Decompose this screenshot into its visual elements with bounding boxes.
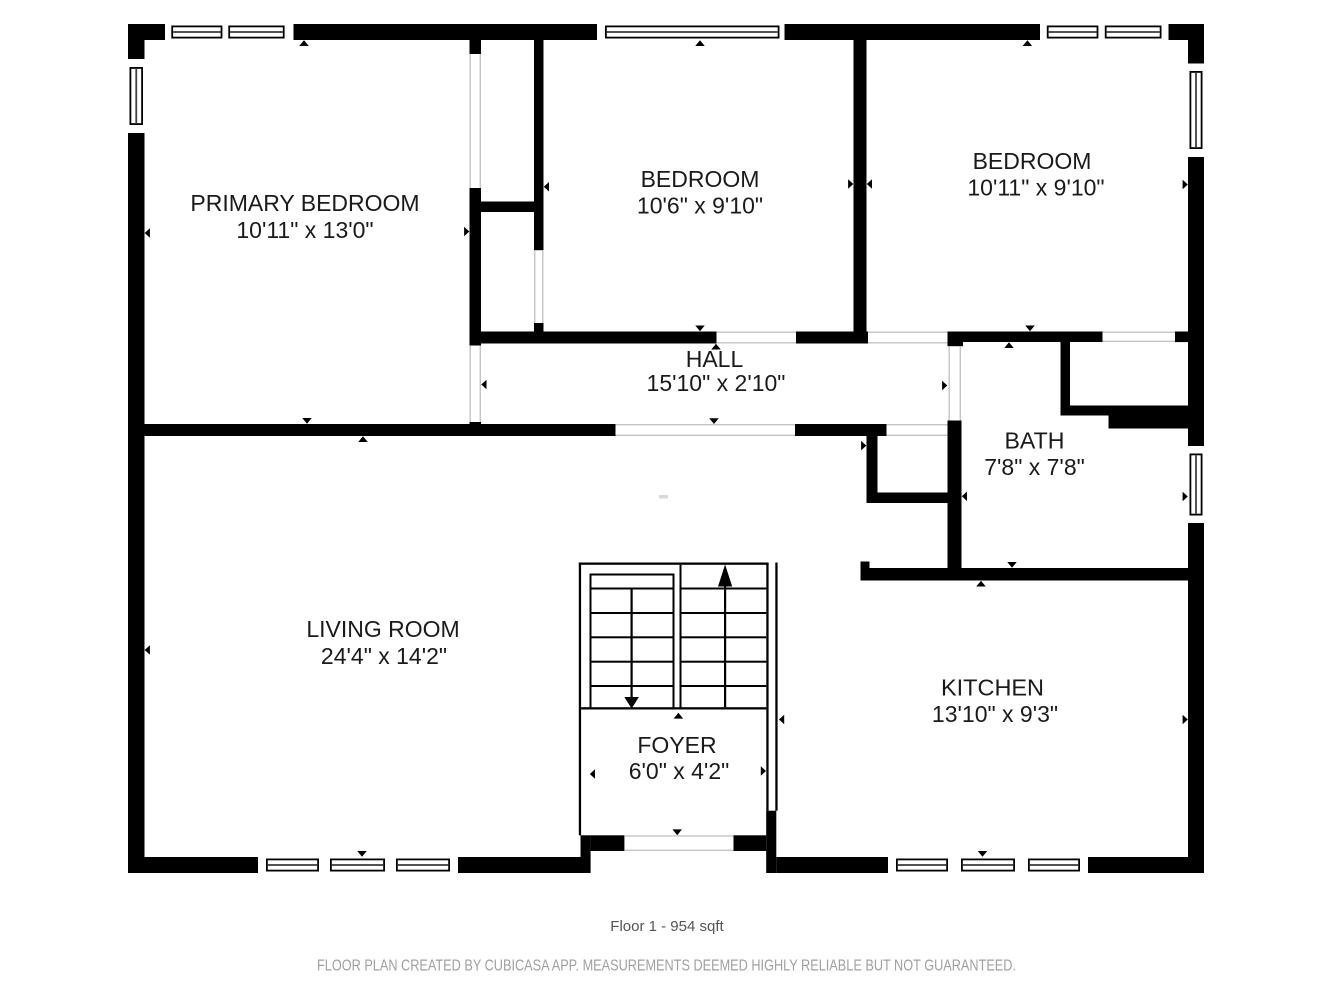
svg-text:BEDROOM: BEDROOM — [973, 148, 1092, 174]
svg-text:LIVING ROOM: LIVING ROOM — [306, 616, 459, 642]
svg-text:15'10" x 2'10": 15'10" x 2'10" — [647, 370, 786, 396]
svg-text:FOYER: FOYER — [637, 732, 716, 758]
svg-text:PRIMARY BEDROOM: PRIMARY BEDROOM — [190, 190, 419, 216]
svg-text:HALL: HALL — [686, 346, 744, 372]
svg-text:BATH: BATH — [1005, 428, 1065, 454]
svg-text:6'0" x 4'2": 6'0" x 4'2" — [629, 758, 730, 784]
svg-text:24'4" x 14'2": 24'4" x 14'2" — [321, 643, 447, 669]
svg-text:10'11" x 13'0": 10'11" x 13'0" — [236, 217, 373, 243]
svg-text:BEDROOM: BEDROOM — [641, 166, 760, 192]
svg-text:Floor 1 - 954 sqft: Floor 1 - 954 sqft — [610, 918, 724, 935]
svg-text:13'10" x 9'3": 13'10" x 9'3" — [932, 701, 1058, 727]
svg-text:7'8" x 7'8": 7'8" x 7'8" — [984, 454, 1085, 480]
svg-text:10'11" x 9'10": 10'11" x 9'10" — [967, 175, 1104, 201]
svg-text:10'6" x 9'10": 10'6" x 9'10" — [637, 193, 763, 219]
svg-text:KITCHEN: KITCHEN — [941, 675, 1044, 701]
svg-text:FLOOR PLAN CREATED BY CUBICASA: FLOOR PLAN CREATED BY CUBICASA APP. MEAS… — [317, 958, 1016, 975]
